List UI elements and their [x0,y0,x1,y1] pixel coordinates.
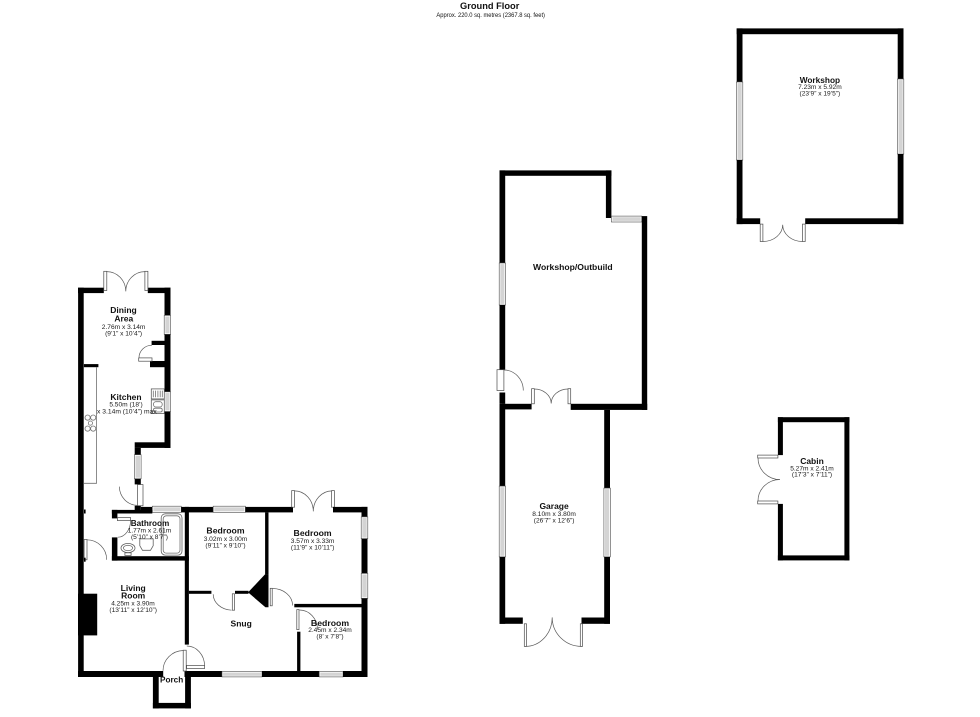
svg-text:(9’11” x 9’10”): (9’11” x 9’10”) [205,542,245,549]
svg-text:(17’3” x 7’11”): (17’3” x 7’11”) [792,472,832,479]
svg-text:Ground Floor: Ground Floor [460,1,520,11]
svg-text:(9’1” x 10’4”): (9’1” x 10’4”) [105,331,142,338]
svg-text:Snug: Snug [231,618,252,628]
svg-text:Approx. 220.0 sq. metres (2367: Approx. 220.0 sq. metres (2367.8 sq. fee… [436,13,545,19]
svg-text:(23’9” x 19’5”): (23’9” x 19’5”) [800,91,841,98]
svg-text:Workshop/Outbuild: Workshop/Outbuild [533,262,613,272]
svg-text:Bedroom: Bedroom [294,528,333,538]
svg-text:Garage: Garage [539,501,569,511]
svg-text:(26’7” x 12’6”): (26’7” x 12’6”) [534,518,575,525]
svg-text:Porch: Porch [160,675,183,685]
svg-text:(11’9” x 10’11”): (11’9” x 10’11”) [291,545,334,552]
svg-text:(13’11” x 12’10”): (13’11” x 12’10”) [109,607,157,614]
svg-text:Bathroom: Bathroom [131,518,170,528]
svg-text:(8’ x 7’8”): (8’ x 7’8”) [316,634,343,641]
svg-text:Room: Room [121,591,146,601]
svg-text:Area: Area [114,314,133,324]
svg-text:Bedroom: Bedroom [206,525,245,535]
svg-text:(5’10” x 8’7”): (5’10” x 8’7”) [131,534,168,541]
svg-text:Cabin: Cabin [800,456,824,466]
svg-text:x 3.14m (10’4”) max: x 3.14m (10’4”) max [97,408,157,415]
svg-text:Kitchen: Kitchen [110,392,141,402]
